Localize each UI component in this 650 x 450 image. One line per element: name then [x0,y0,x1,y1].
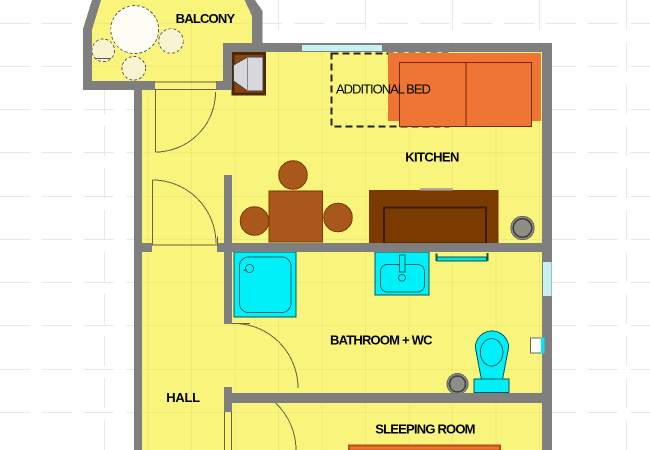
svg-text:BALCONY: BALCONY [176,11,236,26]
svg-text:SLEEPING ROOM: SLEEPING ROOM [375,422,474,437]
svg-text:ADDITIONAL BED: ADDITIONAL BED [336,82,430,97]
svg-text:HALL: HALL [166,390,200,405]
svg-text:BATHROOM + WC: BATHROOM + WC [330,333,433,348]
svg-text:KITCHEN: KITCHEN [405,150,459,165]
